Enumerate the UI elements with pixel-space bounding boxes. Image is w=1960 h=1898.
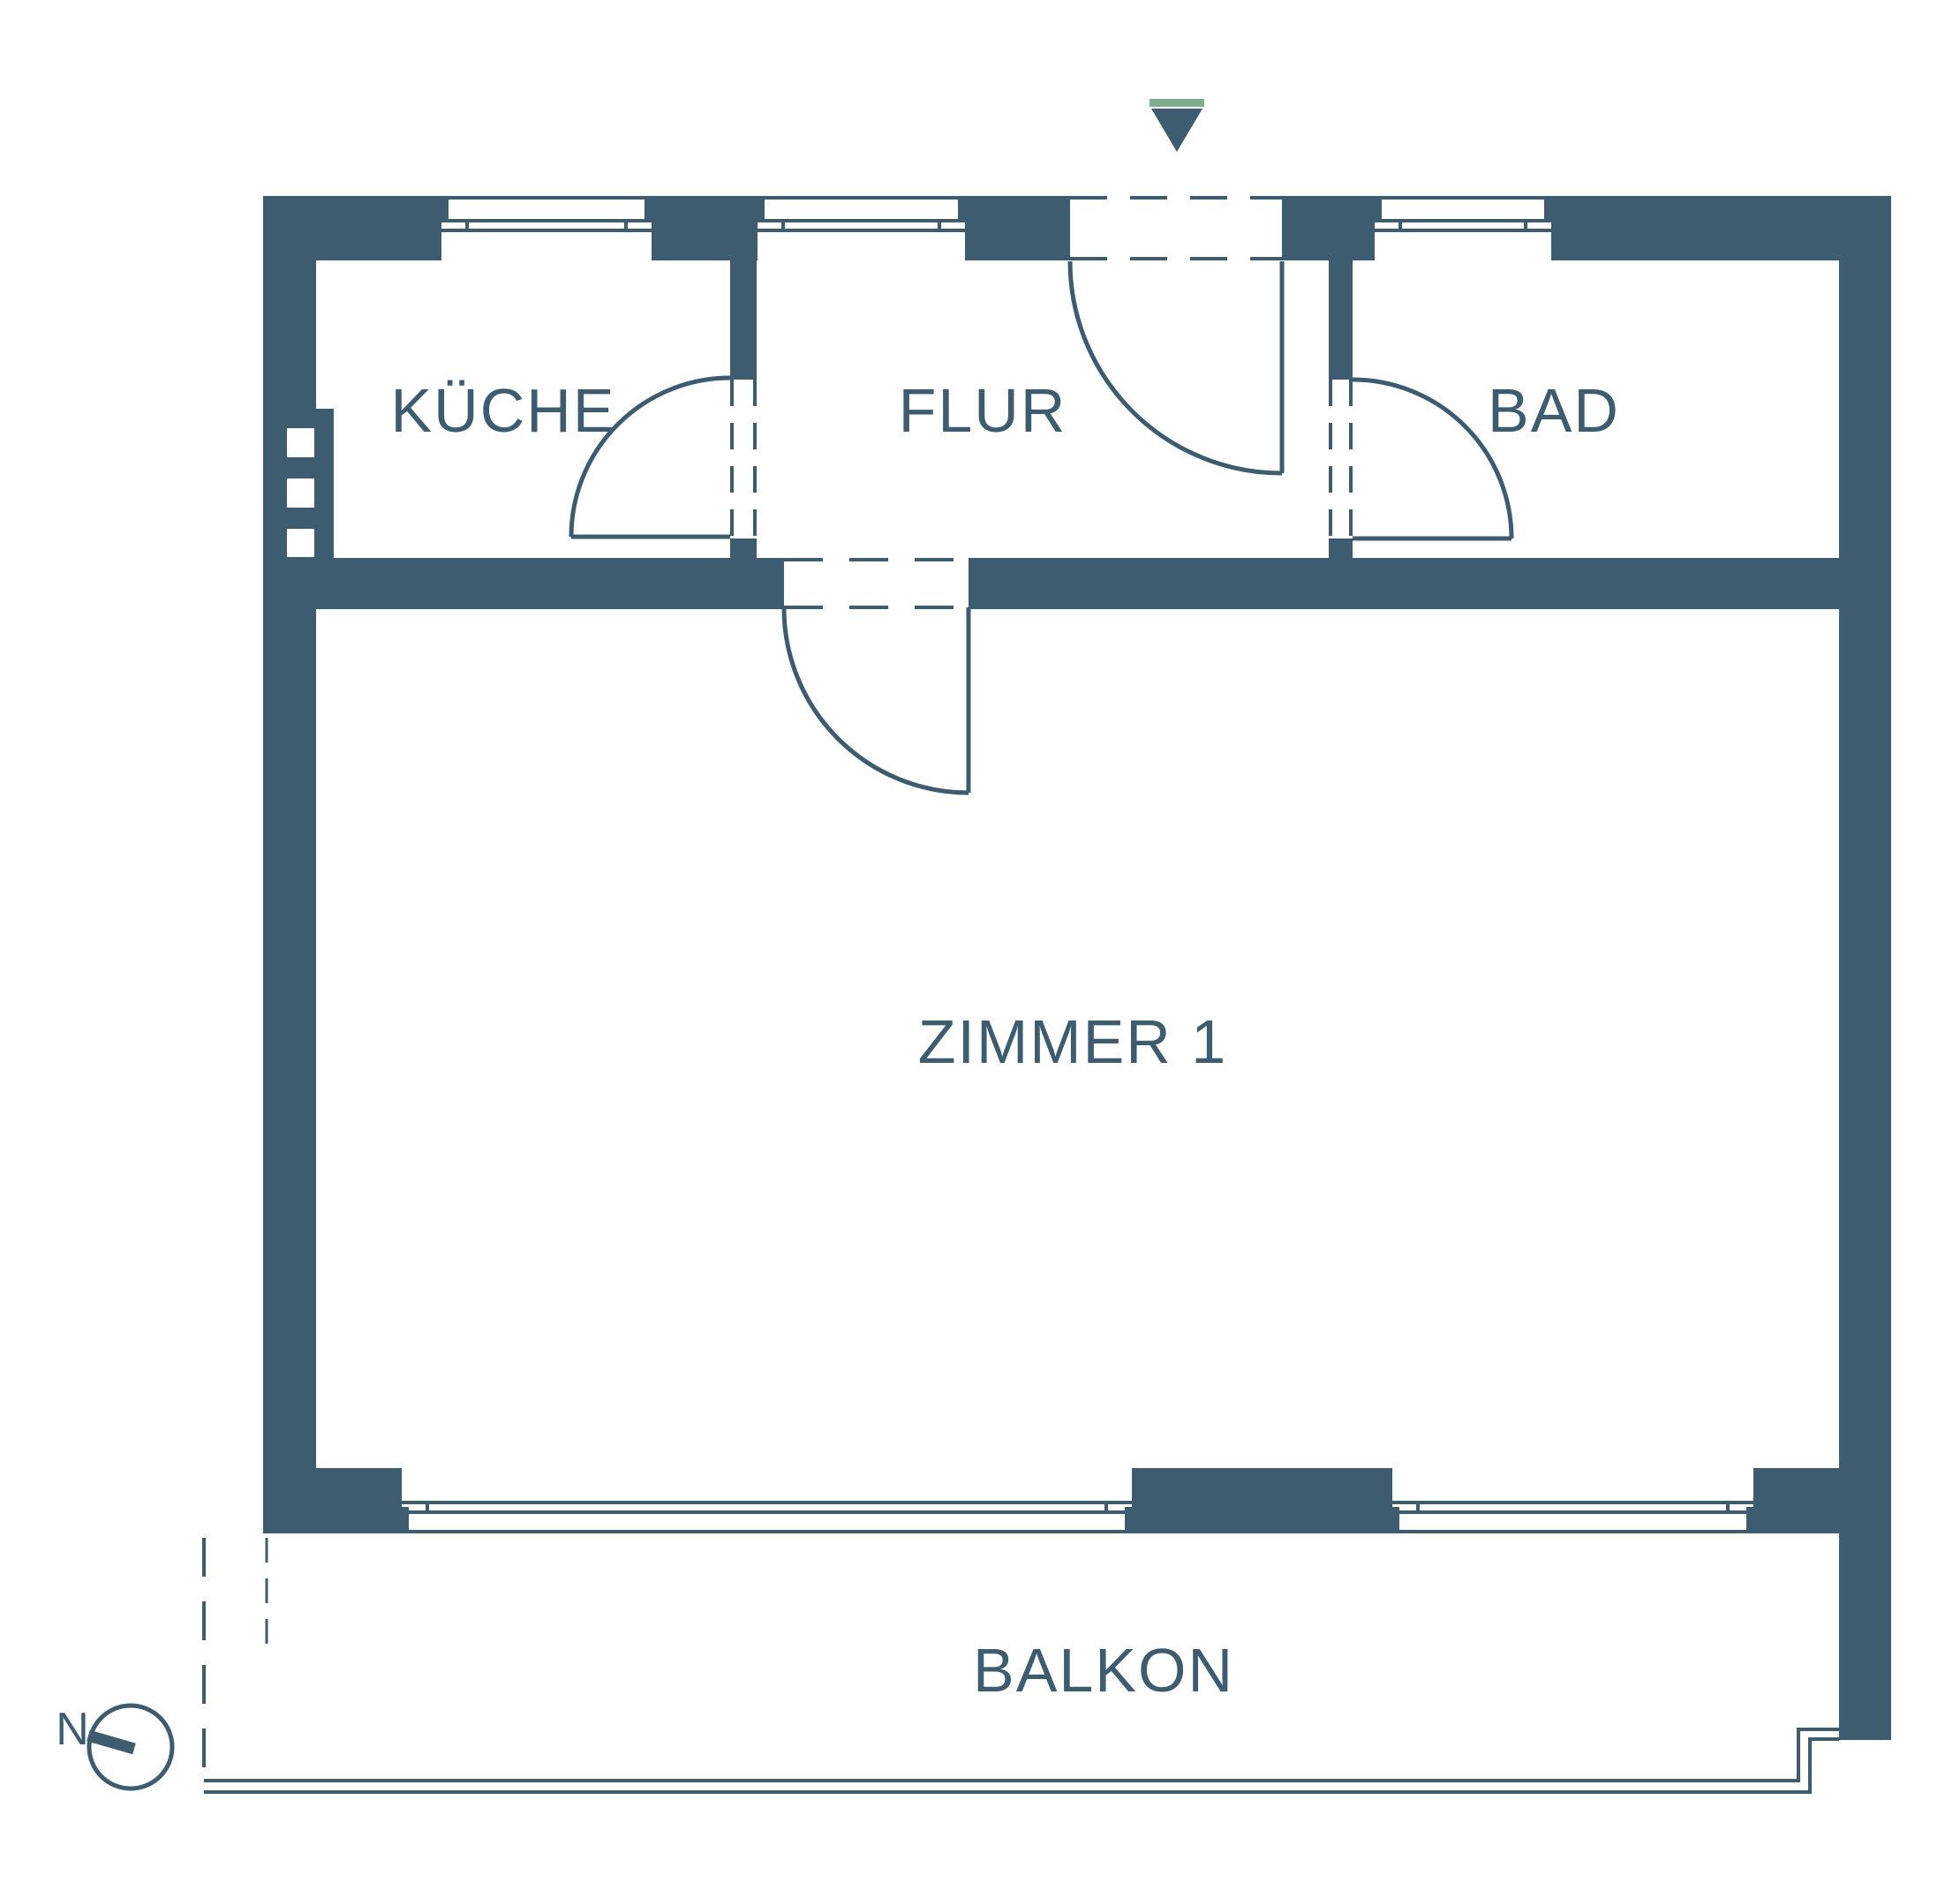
door-entrance (1070, 261, 1282, 473)
window-bad (1375, 196, 1551, 232)
wall-segment (652, 196, 758, 260)
door-zimmer1 (784, 607, 969, 793)
wall-segment (730, 260, 757, 380)
wall-segment (1753, 1468, 1839, 1533)
window-zimmer-right (1392, 1501, 1753, 1533)
wall-segment (969, 558, 1891, 609)
wall-segment (730, 539, 757, 558)
label-kueche: KÜCHE (390, 376, 615, 445)
floor-plan-drawing: N KÜCHE FLUR BAD ZIMMER 1 BALKON (0, 0, 1960, 1898)
balcony-railing-inner (204, 1729, 1839, 1781)
wall-segment (1132, 1468, 1392, 1533)
shaft (263, 409, 334, 558)
label-zimmer1: ZIMMER 1 (918, 1007, 1227, 1076)
wall-segment (965, 196, 1070, 260)
compass-needle (88, 1736, 134, 1749)
compass-north-label: N (56, 1704, 89, 1755)
balcony-railing-outer (204, 1739, 1839, 1792)
wall-segment (263, 558, 784, 609)
wall-left (263, 196, 316, 1533)
floor-plan-page: N KÜCHE FLUR BAD ZIMMER 1 BALKON (0, 0, 1960, 1898)
label-flur: FLUR (899, 376, 1067, 445)
entrance-arrow-icon (1150, 99, 1204, 152)
north-compass-icon: N (56, 1704, 172, 1789)
arrow-triangle (1151, 109, 1202, 152)
wall-segment (263, 1468, 402, 1533)
window-zimmer-left (402, 1501, 1132, 1533)
label-balkon: BALKON (973, 1636, 1234, 1705)
window-kueche (441, 196, 652, 232)
arrow-green-bar (1150, 99, 1204, 107)
label-bad: BAD (1488, 376, 1620, 445)
wall-segment (1329, 539, 1353, 558)
wall-right (1839, 196, 1891, 1740)
wall-segment (1282, 196, 1375, 260)
doors (571, 261, 1511, 793)
window-flur (758, 196, 965, 232)
wall-segment (1329, 260, 1353, 380)
